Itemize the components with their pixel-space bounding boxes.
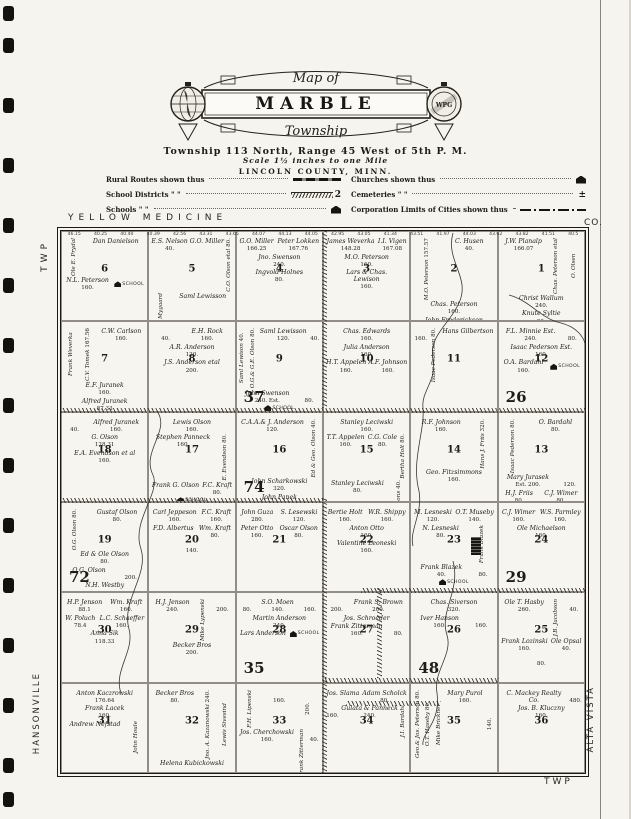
parcel-area: John Guza 280.S. Lesewski 120.Peter Otto…	[237, 503, 322, 591]
owner-name: M.O. Peterson	[424, 259, 430, 300]
owner-name: Valentine Leoneski	[337, 540, 396, 547]
owner-name: E.F. Juranek	[86, 382, 124, 389]
acreage: 128.31	[95, 442, 115, 448]
binding-hole	[3, 278, 14, 293]
owner-name: Geo.& Jos. Peterson	[415, 700, 421, 757]
section-9: Saml Lewison 40.O.G.& G.E. Olson 80.Saml…	[236, 321, 323, 411]
section-11: 160.Isaac Pederson 80.Hans Gilbertson11	[410, 321, 497, 411]
parcel-label: 200.	[304, 690, 313, 728]
parcel-label: Frank Blazek 40.	[420, 564, 464, 579]
acreage: 40.	[70, 427, 79, 433]
schoolhouse-marker: SCHOOL	[114, 277, 144, 292]
parcel-label: G.O. Miller	[189, 238, 225, 292]
owner-name: Becker Bros	[156, 690, 194, 697]
legend-label: Cemeteries " "	[351, 190, 407, 199]
owner-name: Carl Jeppeson	[153, 509, 197, 516]
parcel-area: 160.Isaac Pederson 80.Hans Gilbertson	[411, 322, 496, 410]
parcel-label: Lars Anderson	[239, 630, 287, 637]
district-boundary-hatch	[322, 498, 327, 773]
section-6: Ole E. PrydalDan DanielsonN.L. Peterson …	[61, 231, 148, 321]
acreage: 320.	[448, 607, 460, 613]
owner-name: Mike Lypenski	[200, 599, 206, 641]
acreage: 160.	[326, 713, 338, 719]
owner-name: Isaac Pederson Est.	[511, 344, 573, 351]
parcel-label: 160.	[303, 599, 317, 614]
school-label: SCHOOL	[447, 580, 469, 585]
owner-name: Chas. Peterson	[430, 301, 477, 308]
section-20: Carl Jeppeson 160.F.C. Kraft 160.F.D. Al…	[148, 502, 235, 592]
section-17: Lewis Olson 160.Stephen Panneck 160.E. E…	[148, 412, 235, 502]
section-29: H.J. Jenson 240.Mike Lypenski200.Becker …	[148, 592, 235, 682]
owner-name: Frank G. Olson	[152, 482, 199, 489]
parcel-label: Ingvold Holnes 80.	[255, 269, 304, 284]
parcel-label: 40.	[160, 328, 171, 343]
acreage: 160.	[360, 548, 372, 554]
acreage: 40.	[165, 246, 174, 252]
parcel-label: Ole Opsal 40.	[550, 638, 583, 653]
page-edge-line	[600, 0, 601, 819]
parcel-label: O.A. Bardahl 160.	[503, 359, 545, 374]
acreage: 160.	[512, 517, 524, 523]
owner-name: T.T. Appelen	[327, 434, 365, 441]
parcel-label: M.O. Peterson 160.	[343, 254, 389, 269]
section-5: E.S. Nelson 40.G.O. MillerC.O. Olson eta…	[148, 231, 235, 321]
owner-name: Frank Blazek	[421, 564, 463, 571]
parcel-label: S.O. Moen 140.	[260, 599, 294, 614]
owner-name: N.L. Peterson	[66, 277, 109, 284]
parcel-label: J.W. Planalp 166.07	[504, 238, 543, 294]
parcel-label: 160.	[325, 705, 339, 737]
parcel-label: Chas. Peterson 160.	[429, 301, 478, 316]
parcel-label: Peter Lokken 167.76	[277, 238, 321, 253]
acreage: 160.	[339, 517, 351, 523]
owner-name: Hans J. Friis	[480, 433, 486, 468]
school-icon	[290, 631, 297, 637]
parcel-label: 40.	[309, 729, 320, 773]
section-22: Bertie Holt 160.W.R. Shippy 160.Anton Ot…	[323, 502, 410, 592]
parcel-label: Ed & Geo. Olson 40.	[310, 419, 319, 478]
lot-acreage: 44.13	[278, 232, 291, 237]
acreage: 80.	[353, 488, 362, 494]
parcel-label: Chas. Edwards 160.	[342, 328, 391, 343]
parcel-label: M.O. Peterson 157.57	[423, 238, 432, 300]
lot-acreage: 44.03	[463, 232, 476, 237]
parcel-label: I.I. Vigen 167.08	[377, 238, 408, 253]
owner-name: Jno. Swenson	[258, 254, 300, 261]
legend-leader-dots	[513, 208, 515, 209]
acreage: 200.	[124, 575, 136, 581]
owner-name: F.L. Minnie Est.	[506, 328, 555, 335]
parcel-label: Christ Wallum 240.	[518, 295, 565, 310]
parcel-area: James Weverka 148.28I.I. Vigen 167.08M.O…	[324, 232, 409, 320]
acreage: 160.	[360, 533, 372, 539]
owner-name: O.G.& G.E. Olson	[250, 339, 256, 389]
lot-acreage: 41.51	[542, 232, 555, 237]
section-33: F.H. Lipenski160.200.Jos. Cherchowski 16…	[236, 683, 323, 773]
owner-name: H.J. Jenson	[155, 599, 189, 606]
section-15: Stanley Leciwski 160.T.T. Appelen 160.C.…	[323, 412, 410, 502]
school-icon	[331, 206, 341, 214]
owner-name: Saml Lewisson	[260, 328, 307, 335]
parcel-label: F.H. Lipenski	[246, 690, 255, 728]
parcel-label: N.H. Westby	[84, 582, 125, 589]
acreage: 80.	[226, 238, 232, 249]
acreage: 40.	[562, 646, 571, 652]
parcel-label: Saml Lewisson 120.	[259, 328, 308, 388]
binding-hole	[3, 218, 14, 233]
acreage: 166.25	[247, 246, 267, 252]
parcel-label: A.R. Anderson 120.	[169, 344, 216, 359]
owner-name: O.T. Haseby	[425, 712, 431, 746]
parcel-label: H.J. Jenson 240.	[154, 599, 190, 641]
title-township: Township	[285, 124, 348, 139]
acreage: 80.	[431, 328, 437, 339]
parcel-label: Ole E. Prydal	[70, 238, 79, 276]
owner-name: Andrew Nefstad	[69, 721, 120, 728]
church-icon	[576, 176, 586, 184]
acreage: 80.	[479, 572, 488, 578]
owner-name: G.O. Miller	[190, 238, 224, 245]
owner-name: N. Lesneski	[422, 525, 458, 532]
schoolhouse-marker: SCHOOL	[550, 359, 580, 374]
parcel-label: F.L. Minnie Est. 240.	[505, 328, 556, 343]
parcel-label: E.A. Evendson et al 160.	[73, 450, 136, 465]
owner-name: E.S. Nelson	[151, 238, 187, 245]
owner-name: Chas. Siverson	[431, 599, 478, 606]
acreage: 160.	[517, 368, 529, 374]
owner-name: Stanley Leciwski	[340, 419, 393, 426]
parcel-area: Carl Jeppeson 160.F.C. Kraft 160.F.D. Al…	[149, 503, 234, 591]
parcel-label: Helena Kubickowski	[159, 760, 225, 767]
section-19: O.G. Olson 80.Gustaf Olson 80.Ed & Ole O…	[61, 502, 148, 592]
acreage: 140.	[271, 607, 283, 613]
school-district-number: 29	[506, 568, 527, 586]
acreage: 160.	[98, 458, 110, 464]
village-plat-block	[471, 537, 481, 555]
parcel-label: Frank Zitterman 160.	[330, 623, 384, 638]
acreage: 167.56	[85, 328, 91, 349]
parcel-label: C.J. Wimer 160.	[501, 509, 536, 524]
section-27: 200.Frank S. Brown 200.Jos. SchroederFra…	[323, 592, 410, 682]
owner-name: Anna Sik	[91, 630, 119, 637]
owner-name: Anton Kaczrowski	[76, 690, 133, 697]
parcel-label: Mike Lypenski	[199, 599, 208, 641]
parcel-label: Jos. Schroeder	[343, 615, 391, 622]
section-30: H.P. Jenson 88.1Wm. Kraft 160.W. Poluch …	[61, 592, 148, 682]
owner-name: E.H. Rock	[191, 328, 222, 335]
owner-name: Ole Opsal	[551, 638, 582, 645]
acreage: 160.	[81, 285, 93, 291]
owner-name: R.F. Johnson	[422, 419, 461, 426]
acreage: 280.	[251, 517, 263, 523]
owner-name: Jno. A. Kazanowski	[205, 704, 211, 759]
parcel-label: A.F. Johnson 160.	[367, 359, 408, 374]
parcel-area: Stanley Leciwski 160.T.T. Appelen 160.C.…	[324, 413, 409, 501]
lot-acreage: 42.56	[173, 232, 186, 237]
acreage: 160.	[459, 698, 471, 704]
parcel-label: Frank Weverka	[67, 328, 76, 381]
parcel-label: H.J. Friis 80.	[504, 490, 534, 503]
parcel-label: Carl Jeppeson 160.	[152, 509, 198, 524]
section-32: Becker Bros 80.Jno. A. Kazanowski 240.Le…	[148, 683, 235, 773]
owner-name: Alfred Juranek	[93, 419, 139, 426]
parcel-area: C. Mackey Realty Co.480.Jos. B. Kluczny …	[499, 684, 584, 772]
section-7: Frank WeverkaC.V. Tomek 167.56C.W. Carls…	[61, 321, 148, 411]
parcel-area: Ole T. Hasby 260.J.B. Jacobson40.Frank L…	[499, 593, 584, 681]
parcel-label: Saml Lewisson	[178, 293, 227, 322]
owner-name: Lewis Sivesind	[222, 703, 228, 746]
parcel-label: H.P. Jenson 88.1	[66, 599, 103, 614]
parcel-label: Lewis Sivesind	[221, 690, 230, 759]
acreage: 120.	[563, 482, 575, 488]
acreage: 260.	[518, 607, 530, 613]
parcel-area: H.J. Jenson 240.Mike Lypenski200.Becker …	[149, 593, 234, 681]
section-34: Jos. SlamaAdam Scholck 80.160.Gulata & P…	[323, 683, 410, 773]
owner-name: O. Bardahl	[539, 419, 572, 426]
acreage: 40.	[569, 607, 578, 613]
binding-hole	[3, 758, 14, 773]
owner-name: Saml Lewison	[239, 344, 245, 384]
parcel-label: 160.	[414, 328, 428, 382]
lot-acreage: 44.05	[305, 232, 318, 237]
school-district-number: 74	[244, 478, 265, 496]
schoolhouse-marker: SCHOOL	[439, 579, 469, 585]
owner-name: Dan Danielson	[93, 238, 139, 245]
acreage: 160.	[251, 533, 263, 539]
owner-name: H.T. Appelen	[326, 359, 366, 366]
owner-name: Lars Anderson	[240, 630, 286, 637]
parcel-label: John Houle	[132, 721, 141, 753]
acreage: 160.	[98, 390, 110, 396]
owner-name: A.F. Johnson	[368, 359, 407, 366]
parcel-label: Stanley Leciwski 80.	[330, 480, 385, 502]
plat-book-page: WPG Map of MARBLE Township Scale 1½ inch…	[0, 0, 631, 819]
parcel-label: O.G. Olson 80.	[71, 509, 80, 550]
legend-leader-dots	[154, 208, 326, 209]
parcel-area: M. Lesneski 120.O.T. Museby 140.N. Lesne…	[411, 503, 496, 591]
owner-name: E.A. Evendson et al	[74, 450, 135, 457]
parcel-label: Oscar Olson 80.	[279, 525, 319, 540]
parcel-label: Mike Brickner	[435, 690, 444, 758]
owner-name: C.J. Wimer	[544, 490, 577, 497]
legend-label: School Districts " "	[106, 190, 181, 199]
parcel-label: Mary Purol 160.	[446, 690, 483, 758]
parcel-label: Isaac Pederson Est. 160.	[510, 344, 574, 359]
legend-leader-dots	[186, 193, 286, 194]
parcel-label: Stephen Panneck 160.	[155, 434, 211, 481]
parcel-label: Jos. Cherchowski 160.	[239, 729, 295, 773]
owner-name: J.W. Planalp	[505, 238, 542, 245]
owner-name: C. Husen	[455, 238, 484, 245]
owner-name: Frank Lozinski	[501, 638, 548, 645]
owner-name: Peter Lokken	[278, 238, 320, 245]
acreage: 160.	[448, 309, 460, 315]
parcel-label: M. Lesneski 120.	[413, 509, 453, 524]
parcel-label: 80.	[478, 564, 489, 579]
owner-name: Oscar Olson	[280, 525, 318, 532]
parcel-label: Anna Sik 118.33	[90, 630, 120, 645]
owner-name: F.C. Kraft	[201, 509, 231, 516]
parcel-label: 80.	[304, 390, 315, 405]
owner-name: E. Evendson	[222, 445, 228, 481]
owner-name: N.H. Westby	[85, 582, 124, 589]
church-icon	[576, 176, 586, 184]
school-label: SCHOOL	[122, 282, 144, 287]
acreage: 160.	[448, 477, 460, 483]
parcel-label: Isaac Pederson 80.	[430, 328, 439, 382]
acreage: 160.	[210, 517, 222, 523]
lot-acreage: 43.31	[199, 232, 212, 237]
owner-name: Ingvold Holnes	[256, 269, 303, 276]
acreage: 320.	[480, 419, 486, 433]
school-district-line: 2	[291, 190, 341, 200]
parcel-area: Ole E. PrydalDan DanielsonN.L. Peterson …	[62, 232, 147, 320]
township-map: 46.1540.2540.4040.3942.5643.3143.6544.07…	[60, 230, 586, 774]
school-district-line	[291, 192, 333, 198]
parcel-label: F.D. Albertus	[152, 525, 195, 540]
legend-leader-dots	[209, 178, 288, 179]
parcel-area: Jos. SlamaAdam Scholck 80.160.Gulata & P…	[324, 684, 409, 772]
legend-row: Corporation Limits of Cities shown thus	[351, 202, 586, 217]
owner-name: F.C. Kraft	[202, 482, 232, 489]
acreage: 80.	[222, 434, 228, 445]
owner-name: Geo. Fitzsimmons	[396, 490, 402, 502]
district-boundary-hatch	[322, 231, 327, 408]
parcel-label: Martin Anderson 240.	[252, 615, 307, 630]
parcel-label: Frank Zitterman	[298, 729, 307, 773]
owner-name: Ole Michaelson	[517, 525, 566, 532]
acreage: 140.	[468, 517, 480, 523]
acreage: 160.	[350, 631, 362, 637]
acreage: 320.	[273, 486, 285, 492]
owner-name: Albert Mygaard	[158, 293, 164, 322]
parcel-label: J.I. Bardahl	[399, 705, 408, 737]
acreage: 78.4	[74, 623, 86, 629]
owner-name: Iver Hanson	[420, 615, 458, 622]
owner-name: Frank Zitterman	[299, 729, 305, 773]
acreage: 200.	[186, 368, 198, 374]
owner-name: Becker Bros	[173, 642, 211, 649]
section-21: John Guza 280.S. Lesewski 120.Peter Otto…	[236, 502, 323, 592]
schoolhouse-marker: SCHOOL	[290, 630, 320, 637]
district-boundary-hatch	[361, 588, 585, 593]
parcel-label: L.C. Schaeffer 160.	[99, 615, 146, 630]
parcel-area: J.W. Planalp 166.07Chas. Peterson etalO.…	[499, 232, 584, 320]
binding-hole	[3, 6, 14, 21]
acreage: 40.	[437, 572, 446, 578]
parcel-area: H.P. Jenson 88.1Wm. Kraft 160.W. Poluch …	[62, 593, 147, 681]
parcel-label: Lars & Chas. Lewison 160.	[333, 269, 401, 291]
section-28: 80.S.O. Moen 140.160.Martin Anderson 240…	[236, 592, 323, 682]
owner-name: F.H. Lipenski	[247, 690, 253, 728]
acreage: 80.	[275, 277, 284, 283]
owner-name: O. Olsen	[571, 254, 577, 278]
edge-label-twp-bottom: TWP	[544, 777, 573, 787]
parcel-label: O. Bardahl 80.	[538, 419, 573, 473]
lot-acreage: 41.97	[436, 232, 449, 237]
acreage: 160.	[116, 623, 128, 629]
acreage: 160.	[168, 517, 180, 523]
school-label: SCHOOL	[558, 364, 580, 369]
acreage: 80.	[568, 336, 577, 342]
parcel-label: Valentine Leoneski 160.	[336, 540, 397, 555]
parcel-label: John Guza 280.	[240, 509, 274, 524]
parcel-label: 140.	[486, 690, 495, 758]
rural-route-line	[293, 178, 341, 181]
school-district-number: 26	[506, 388, 527, 406]
acreage: 240.	[205, 690, 211, 704]
section-2: M.O. Peterson 157.57C. Husen 40.Chas. Pe…	[410, 231, 497, 321]
parcel-area: Bertie Holt 160.W.R. Shippy 160.Anton Ot…	[324, 503, 409, 591]
parcel-label: J.S. Anderson etal 200.	[163, 359, 221, 374]
parcel-label: W. Poluch 78.4	[64, 615, 96, 630]
acreage: 80.	[394, 631, 403, 637]
section-26: Chas. Siverson 320.Iver Hanson 160.160.2…	[410, 592, 497, 682]
parcel-label: Gustaf Olson 80.	[96, 509, 138, 550]
acreage: 160.	[110, 427, 122, 433]
parcel-label: E.S. Nelson 40.	[150, 238, 188, 292]
acreage: 160.	[360, 352, 372, 358]
lot-acreage: 40.25	[94, 232, 107, 237]
acreage: 80.	[113, 517, 122, 523]
parcel-area: Chas. Edwards 160.Julia Anderson 160.H.T…	[324, 322, 409, 410]
parcel-label: Frank Lozinski 160.	[500, 638, 549, 653]
owner-name: Frank Weverka	[68, 333, 74, 377]
parcel-label: R.F. Johnson 160.	[421, 419, 462, 469]
parcel-area: Anton Kaczrowski 176.64Frank Lacek 160.A…	[62, 684, 147, 772]
school-district-line-text: 2	[335, 190, 341, 200]
section-24: C.J. Wimer 160.W.S. Parmley 160.Ole Mich…	[498, 502, 585, 592]
owner-name: Wm. Kraft	[110, 599, 142, 606]
parcel-label: Geo. Fitzsimmons 40.	[395, 480, 404, 502]
owner-name: John Houle	[133, 721, 139, 753]
owner-name: M.O. Peterson	[344, 254, 388, 261]
acreage: 160.	[177, 442, 189, 448]
parcel-label: 140.	[185, 540, 199, 555]
acreage: 120.	[277, 336, 289, 342]
acreage: 160.	[360, 262, 372, 268]
acreage: 80.	[72, 509, 78, 520]
acreage: 80.	[213, 490, 222, 496]
acreage: 160.	[360, 284, 372, 290]
parcel-label: Jos. B. Kluczny 160.	[517, 705, 566, 720]
owner-name: C.O. Olson etal	[226, 249, 232, 292]
owner-name: Adam Scholck	[362, 690, 407, 697]
parcel-label: Bertie Holt 160.	[327, 509, 364, 524]
parcel-label: H.T. Appelen 160.	[325, 359, 367, 374]
owner-name: W. Poluch	[65, 615, 95, 622]
owner-name: O.T. Museby	[455, 509, 493, 516]
parcel-label: Ole T. Hasby 260.	[503, 599, 545, 636]
owner-name: A.R. Anderson	[170, 344, 215, 351]
owner-name: Mary Purol	[447, 690, 482, 697]
parcel-label: C.J. Wimer 80.	[543, 490, 578, 503]
acreage: 160.	[98, 713, 110, 719]
lot-acreage: 44.07	[252, 232, 265, 237]
acreage: 160.	[201, 336, 213, 342]
acreage: 160.	[554, 517, 566, 523]
owner-name: Lewis Olson	[173, 419, 211, 426]
owner-name: Helena Kubickowski	[160, 760, 224, 767]
acreage: 160.	[475, 623, 487, 629]
parcel-label: 80.	[567, 328, 578, 343]
binding-hole	[3, 338, 14, 353]
owner-name: C.G. Cole	[368, 434, 397, 441]
title-map-of: Map of	[292, 71, 341, 86]
parcel-label: 80.	[393, 623, 404, 638]
parcel-label: Geo. Fitzsimmons 160.	[425, 469, 483, 484]
section-14: R.F. Johnson 160.Hans J. Friis 320.Geo. …	[410, 412, 497, 502]
